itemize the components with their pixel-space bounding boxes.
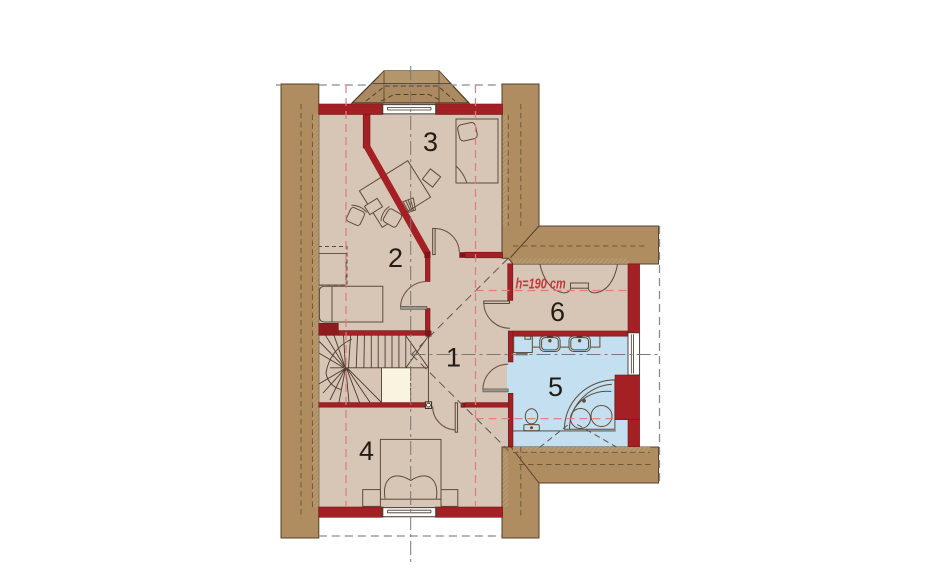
svg-text:5: 5 bbox=[548, 372, 563, 402]
svg-text:4: 4 bbox=[359, 436, 374, 466]
svg-text:6: 6 bbox=[550, 297, 565, 327]
svg-text:3: 3 bbox=[423, 127, 438, 157]
svg-text:1: 1 bbox=[446, 343, 461, 373]
svg-text:h=190 cm: h=190 cm bbox=[516, 275, 566, 292]
svg-text:2: 2 bbox=[388, 243, 403, 273]
